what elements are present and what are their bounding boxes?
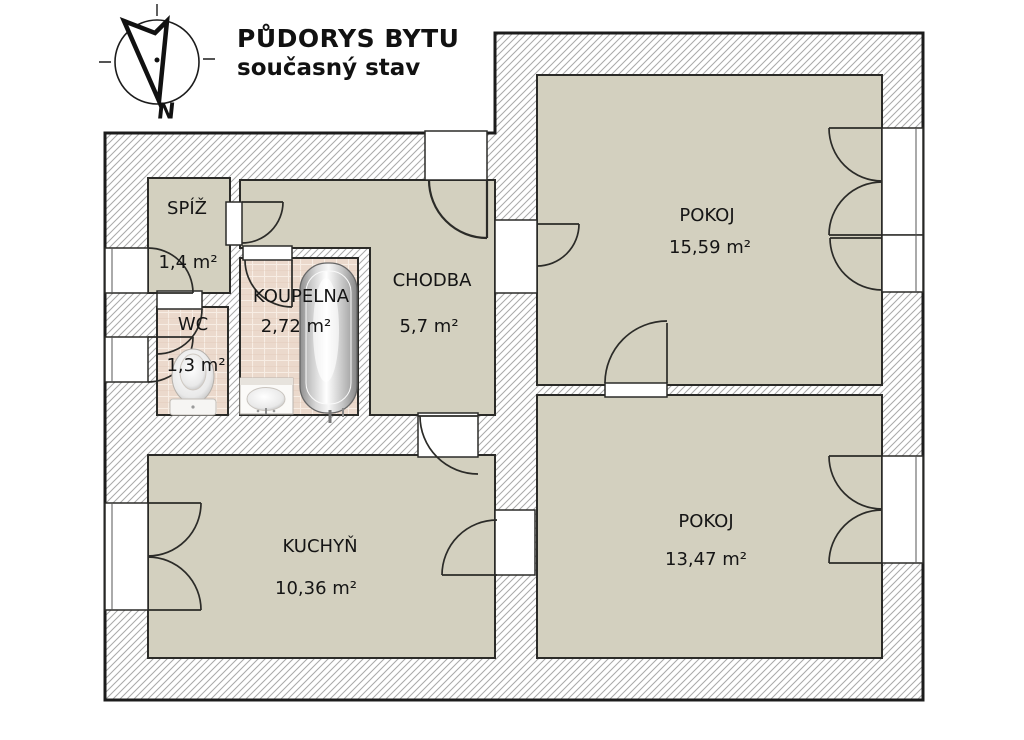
floor-plan-page: PŮDORYS BYTU současný stav N SPÍŽ 1,4 m²… — [0, 0, 1024, 740]
room-area-koupelna: 2,72 m² — [261, 318, 332, 336]
room-label-kuchyn: KUCHYŇ — [282, 538, 357, 556]
room-area-spiz: 1,4 m² — [158, 254, 217, 272]
room-area-chodba: 5,7 m² — [399, 318, 458, 336]
room-area-kuchyn: 10,36 m² — [275, 580, 357, 598]
pokoj1-door-opening — [495, 220, 537, 293]
room-label-pokoj1: POKOJ — [679, 207, 734, 225]
kuchyn-window — [105, 503, 148, 610]
room-label-wc: WC — [178, 316, 208, 334]
pokoj1-window-a — [882, 128, 923, 235]
compass-icon — [99, 4, 215, 104]
koupelna-door-opening — [243, 246, 292, 260]
entrance-door-opening — [425, 131, 487, 180]
spiz-window — [105, 248, 148, 293]
kuchyn-door-opening — [418, 413, 478, 457]
pokoj1-window-b — [882, 235, 923, 292]
floor-plan-drawing — [0, 0, 1024, 740]
room-label-chodba: CHODBA — [393, 272, 472, 290]
kuchyn-pokoj2-door-opening — [495, 510, 535, 575]
wc-window — [105, 337, 148, 382]
room-label-koupelna: KOUPELNA — [253, 288, 349, 306]
pokoj2-window — [882, 456, 923, 563]
room-label-pokoj2: POKOJ — [678, 513, 733, 531]
room-area-pokoj2: 13,47 m² — [665, 551, 747, 569]
room-area-wc: 1,3 m² — [166, 357, 225, 375]
compass-north-label: N — [155, 100, 176, 125]
room-area-pokoj1: 15,59 m² — [669, 239, 751, 257]
page-subtitle: současný stav — [237, 55, 420, 81]
pokoj-connecting-door-opening — [605, 383, 667, 397]
room-label-spiz: SPÍŽ — [167, 200, 207, 218]
spiz-door-opening — [226, 202, 242, 245]
page-title: PŮDORYS BYTU — [237, 24, 459, 53]
sink-icon — [240, 378, 293, 414]
room-pokoj1-floor — [537, 75, 882, 385]
